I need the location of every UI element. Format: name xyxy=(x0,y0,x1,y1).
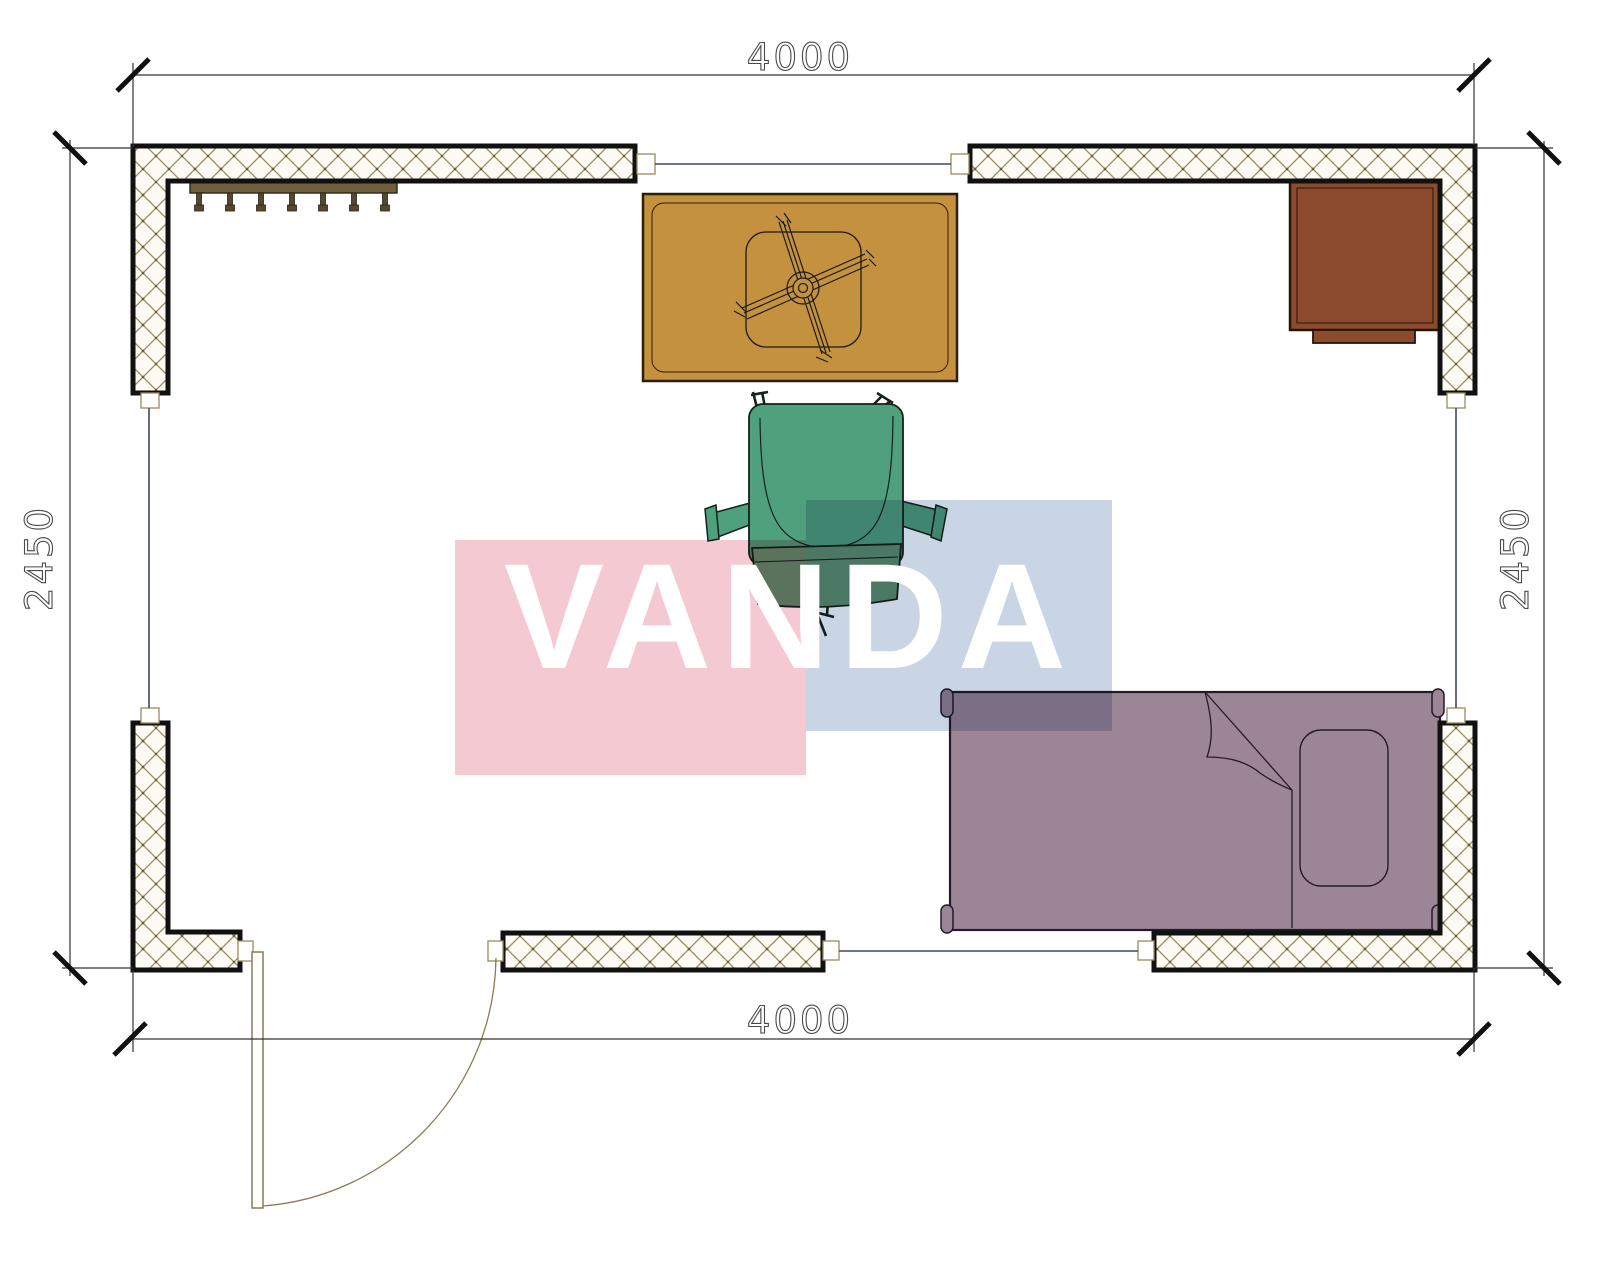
wall-bottom-center xyxy=(503,933,823,970)
coat-rack xyxy=(190,180,397,211)
desk-drawer xyxy=(1313,330,1415,343)
dim-label-right: 2450 xyxy=(1494,505,1537,611)
bed-post xyxy=(941,905,953,933)
desk xyxy=(1290,181,1440,343)
table xyxy=(643,194,957,381)
wall-top-left xyxy=(133,146,635,393)
wall-bottom-left xyxy=(133,723,240,970)
bed-post xyxy=(1432,689,1444,717)
bed-pillow xyxy=(1300,730,1388,886)
door-swing-arc xyxy=(263,958,496,1206)
floor-plan-canvas: 4000 4000 2450 2450 VANDA xyxy=(0,0,1600,1280)
watermark-text: VANDA xyxy=(460,540,1120,692)
door-leaf xyxy=(252,952,263,1208)
door xyxy=(252,952,496,1208)
coat-rack-hooks xyxy=(195,193,390,211)
dim-label-left: 2450 xyxy=(18,505,61,611)
dim-label-bottom: 4000 xyxy=(747,999,853,1042)
dim-label-top: 4000 xyxy=(747,36,853,79)
desk-top xyxy=(1290,181,1440,330)
